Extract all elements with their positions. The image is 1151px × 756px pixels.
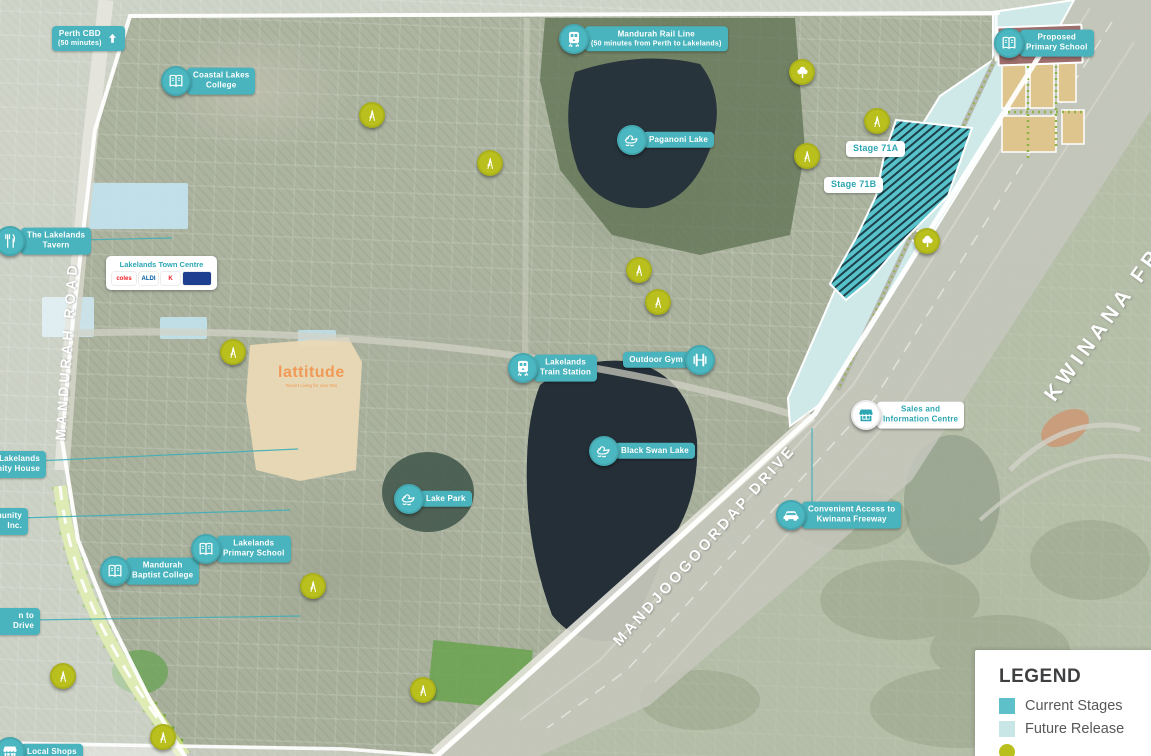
local-shops-badge[interactable]: Local Shops [21, 744, 83, 756]
masterplan-map: MANDURAH ROAD KWINANA FREEWAY MANDJOOGOO… [0, 0, 1151, 756]
slide-icon [305, 578, 322, 595]
playground-10-marker[interactable] [410, 677, 436, 703]
proposed-primary-school-marker[interactable] [994, 28, 1024, 58]
lakelands-train-station-marker[interactable] [508, 353, 538, 383]
legend-title: LEGEND [999, 666, 1081, 688]
proposed-primary-school-badge[interactable]: ProposedPrimary School [1020, 30, 1094, 57]
legend-item-2: Future Release [999, 721, 1124, 737]
train-icon [564, 29, 584, 49]
perth-cbd-text: Perth CBD(50 minutes) [58, 29, 102, 48]
the-lakelands-tavern-label-line: Tavern [27, 241, 85, 251]
sales-and-information-centre-label-line: Sales and [883, 405, 958, 415]
duck-icon [622, 130, 642, 150]
paganoni-lake-marker[interactable] [617, 125, 647, 155]
community-inc-badge[interactable]: CommunityInc. [0, 508, 28, 535]
community-house-label-line: Community House [0, 464, 40, 474]
black-swan-lake-marker[interactable] [589, 436, 619, 466]
lake-park-marker[interactable] [394, 484, 424, 514]
legend-label: Future Release [1025, 721, 1124, 737]
tree-icon [919, 233, 936, 250]
lakelands-primary-school-label-line: Lakelands [223, 539, 285, 549]
playground-5-marker[interactable] [626, 257, 652, 283]
lakelands-primary-school-badge[interactable]: LakelandsPrimary School [217, 536, 291, 563]
slide-icon [55, 668, 72, 685]
slide-icon [415, 682, 432, 699]
slide-icon [869, 113, 886, 130]
mandurah-baptist-college-label-line: Mandurah [132, 561, 193, 571]
lakelands-train-station-badge[interactable]: LakelandsTrain Station [534, 355, 597, 382]
arrow-up-icon [106, 32, 119, 45]
community-house-badge[interactable]: LakelandsCommunity House [0, 451, 46, 478]
legend-items: Current StagesFuture Release [999, 698, 1124, 756]
book-icon [196, 539, 216, 559]
slide-icon [364, 107, 381, 124]
slide-icon [631, 262, 648, 279]
paganoni-lake-label-line: Paganoni Lake [649, 135, 708, 145]
coastal-lakes-college-label-line: Coastal Lakes [193, 71, 249, 81]
mandurah-baptist-college-marker[interactable] [100, 556, 130, 586]
coastal-lakes-college-badge[interactable]: Coastal LakesCollege [187, 68, 255, 95]
playground-1-marker[interactable] [359, 102, 385, 128]
outdoor-gym-badge[interactable]: Outdoor Gym [623, 352, 689, 368]
playground-11-marker[interactable] [150, 724, 176, 750]
mandurah-rail-line-marker[interactable] [559, 24, 589, 54]
outdoor-gym-marker[interactable] [685, 345, 715, 375]
mandurah-baptist-college-badge[interactable]: MandurahBaptist College [126, 558, 199, 585]
playground-9-marker[interactable] [50, 663, 76, 689]
trees-1-marker[interactable] [789, 59, 815, 85]
playground-3-marker[interactable] [864, 108, 890, 134]
proposed-primary-school-label-line: Primary School [1026, 43, 1088, 53]
playground-4-marker[interactable] [794, 143, 820, 169]
convenient-access-to-kwinana-freeway-label-line: Convenient Access to [808, 505, 895, 515]
legend-swatch-circle [999, 744, 1015, 756]
shop-icon [856, 405, 876, 425]
convenient-access-to-kwinana-freeway-marker[interactable] [776, 500, 806, 530]
duck-icon [399, 489, 419, 509]
lakelands-primary-school-marker[interactable] [191, 534, 221, 564]
sales-and-information-centre-label-line: Information Centre [883, 415, 958, 425]
mandurah-rail-line-label-line: (50 minutes from Perth to Lakelands) [591, 40, 722, 49]
playground-6-marker[interactable] [645, 289, 671, 315]
lakelands-train-station-label-line: Train Station [540, 368, 591, 378]
paganoni-lake-badge[interactable]: Paganoni Lake [643, 132, 714, 148]
access-drive-badge[interactable]: n toDrive [0, 608, 40, 635]
duck-icon [594, 441, 614, 461]
coastal-lakes-college-marker[interactable] [161, 66, 191, 96]
playground-8-marker[interactable] [300, 573, 326, 599]
convenient-access-to-kwinana-freeway-badge[interactable]: Convenient Access toKwinana Freeway [802, 502, 901, 529]
the-lakelands-tavern-label-line: The Lakelands [27, 231, 85, 241]
slide-icon [155, 729, 172, 746]
lakelands-primary-school-label-line: Primary School [223, 549, 285, 559]
playground-7-marker[interactable] [220, 339, 246, 365]
perth-cbd-badge[interactable]: Perth CBD(50 minutes) [52, 26, 125, 51]
access-drive-label-line: Drive [0, 621, 34, 631]
mandurah-rail-line-badge[interactable]: Mandurah Rail Line(50 minutes from Perth… [585, 26, 728, 51]
sales-and-information-centre-badge[interactable]: Sales andInformation Centre [877, 402, 964, 429]
access-drive-label-line: n to [0, 611, 34, 621]
convenient-access-to-kwinana-freeway-label-line: Kwinana Freeway [808, 515, 895, 525]
coastal-lakes-college-label-line: College [193, 81, 249, 91]
lake-park-label-line: Lake Park [426, 494, 466, 504]
slide-icon [799, 148, 816, 165]
lakelands-train-station-label-line: Lakelands [540, 358, 591, 368]
legend-item-1: Current Stages [999, 698, 1124, 714]
community-inc-label-line: Inc. [0, 521, 22, 531]
book-icon [999, 33, 1019, 53]
mandurah-rail-line-label-line: Mandurah Rail Line [591, 29, 722, 39]
outdoor-gym-label-line: Outdoor Gym [629, 355, 683, 365]
sales-and-information-centre-marker[interactable] [851, 400, 881, 430]
legend-swatch-square [999, 721, 1015, 737]
car-icon [781, 505, 801, 525]
train-icon [513, 358, 533, 378]
black-swan-lake-label-line: Black Swan Lake [621, 446, 689, 456]
slide-icon [650, 294, 667, 311]
book-icon [166, 71, 186, 91]
lake-park-badge[interactable]: Lake Park [420, 491, 472, 507]
stage-71a-label: Stage 71A [846, 141, 905, 157]
mandurah-baptist-college-label-line: Baptist College [132, 571, 193, 581]
black-swan-lake-badge[interactable]: Black Swan Lake [615, 443, 695, 459]
the-lakelands-tavern-badge[interactable]: The LakelandsTavern [21, 228, 91, 255]
markers-layer: Perth CBD(50 minutes)Coastal LakesColleg… [0, 0, 1151, 756]
legend-label: Current Stages [1025, 698, 1123, 714]
local-shops-marker[interactable] [0, 737, 25, 756]
book-icon [105, 561, 125, 581]
tree-icon [794, 64, 811, 81]
local-shops-label-line: Local Shops [27, 747, 77, 756]
community-house-label-line: Lakelands [0, 454, 40, 464]
legend-item-3 [999, 744, 1124, 756]
slide-icon [225, 344, 242, 361]
legend-panel: LEGEND Current StagesFuture Release [975, 650, 1151, 756]
legend-swatch-square [999, 698, 1015, 714]
shop-icon [0, 742, 20, 756]
slide-icon [482, 155, 499, 172]
playground-2-marker[interactable] [477, 150, 503, 176]
stage-71b-label: Stage 71B [824, 177, 883, 193]
trees-2-marker[interactable] [914, 228, 940, 254]
cutlery-icon [0, 231, 20, 251]
gym-icon [690, 350, 710, 370]
community-inc-label-line: Community [0, 511, 22, 521]
proposed-primary-school-label-line: Proposed [1026, 33, 1088, 43]
